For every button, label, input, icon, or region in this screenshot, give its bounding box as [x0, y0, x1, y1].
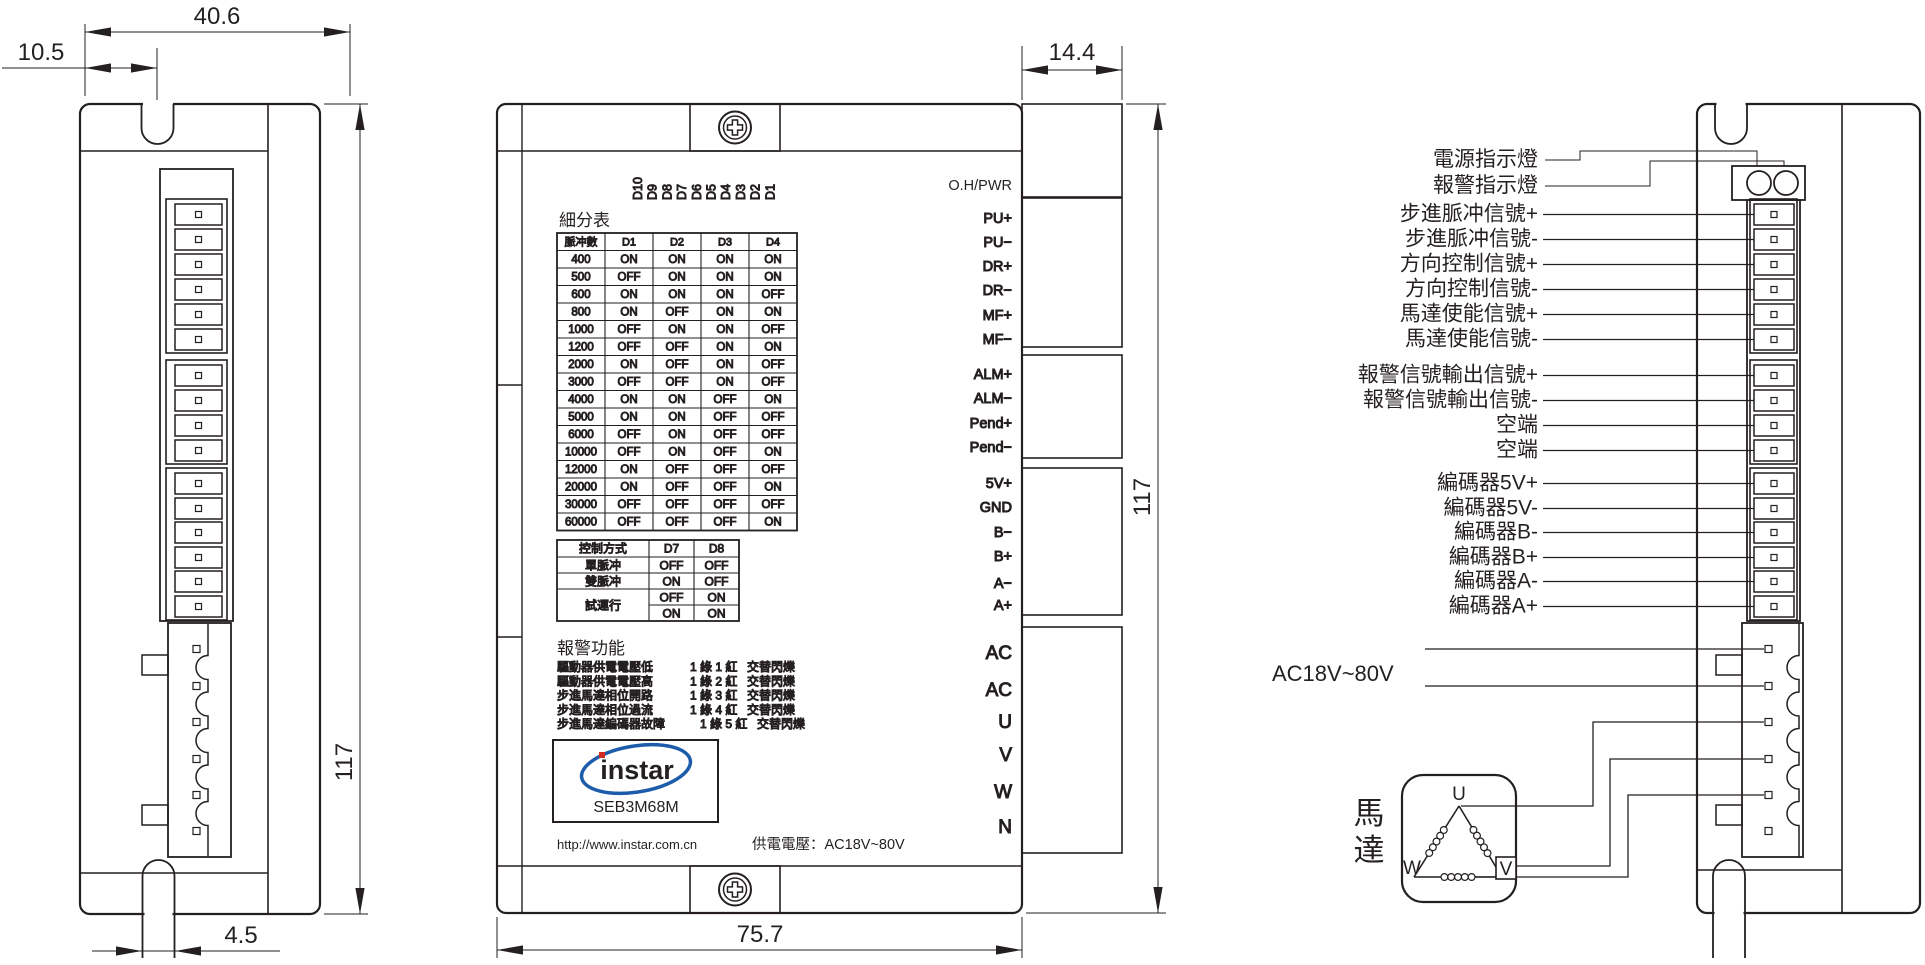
table-cell: ON [620, 306, 637, 318]
power-terminal-label: AC [986, 643, 1012, 664]
terminal-cell [175, 390, 222, 411]
alarm-led-code: 1 綠 4 紅 [690, 703, 737, 717]
dim-front-width: 75.7 [737, 921, 784, 948]
table-cell: OFF [762, 289, 785, 301]
supply-voltage-label: AC18V~80V [1272, 661, 1394, 686]
dim-arrow [355, 104, 364, 130]
terminal-cell [175, 440, 222, 461]
table-cell: OFF [660, 591, 684, 605]
coil-turn [1426, 850, 1433, 857]
terminal-pin [196, 287, 202, 293]
signal-terminal-label: DR− [983, 283, 1012, 299]
terminal-cell [1754, 254, 1794, 275]
table-cell: OFF [714, 446, 737, 458]
terminal-cell [175, 329, 222, 350]
terminal-cell [175, 547, 222, 568]
table-cell: ON [668, 271, 685, 283]
terminal-cell [175, 365, 222, 386]
signal-terminal-label: PU+ [983, 211, 1012, 227]
left-connector-tab [142, 805, 168, 825]
terminal-pin [1771, 262, 1777, 268]
dip-label: D2 [749, 184, 763, 200]
terminal-pin [196, 237, 202, 243]
side-connector-block [1022, 104, 1122, 197]
mask [145, 906, 173, 920]
table-cell: ON [668, 254, 685, 266]
terminal-cell [1754, 279, 1794, 300]
terminal-pin [196, 481, 202, 487]
alarm-mode: 交替閃爍 [747, 702, 795, 717]
wiring-label-column: 電源指示燈報警指示燈步進脈冲信號+步進脈冲信號-方向控制信號+方向控制信號-馬達… [1358, 148, 1538, 618]
terminal-cell [1754, 547, 1794, 568]
terminal-cell [175, 571, 222, 592]
coil-turn [1455, 874, 1462, 881]
terminal-pin [196, 212, 202, 218]
terminal-cell [175, 498, 222, 519]
terminal-pin [1771, 481, 1777, 487]
terminal-pin [1771, 237, 1777, 243]
power-led [1747, 171, 1771, 195]
table-cell: OFF [762, 411, 785, 423]
terminal-pin [1771, 337, 1777, 343]
table-cell: ON [716, 376, 733, 388]
wire [1545, 161, 1784, 186]
wiring-label: 馬達使能信號+ [1400, 303, 1538, 326]
screw-icon [719, 112, 751, 144]
coil-turn [1468, 874, 1475, 881]
indicator-wire-label: 報警指示燈 [1433, 174, 1538, 197]
terminal-pin [196, 337, 202, 343]
table-cell: 60000 [565, 516, 597, 528]
wire [1545, 151, 1757, 166]
encoder-terminal-label: A+ [994, 598, 1012, 614]
terminal-pin [196, 530, 202, 536]
alarm-led-code: 1 綠 2 紅 [690, 674, 737, 688]
alarm-mode: 交替閃爍 [747, 659, 795, 674]
alarm-led-code: 1 綠 3 紅 [690, 689, 737, 703]
terminal-cell [175, 596, 222, 617]
table-cell: OFF [618, 271, 641, 283]
power-connector-body [1742, 623, 1803, 857]
wiring-label: 步進脈冲信號- [1405, 228, 1538, 251]
terminal-cell [175, 304, 222, 325]
connector-pin [1765, 683, 1772, 690]
table-cell: ON [668, 289, 685, 301]
table-header: D1 [622, 236, 636, 248]
terminal-cell [175, 204, 222, 225]
wiring-label: 空端 [1496, 414, 1538, 437]
dim-left-width: 40.6 [194, 3, 241, 30]
motor-wire-u [1461, 722, 1764, 806]
table-cell: OFF [618, 446, 641, 458]
terminal-pin [1771, 312, 1777, 318]
connector-pin [193, 792, 200, 799]
table-cell: OFF [705, 559, 729, 573]
power-terminal-label: AC [986, 680, 1012, 701]
subdivision-table-title: 細分表 [559, 211, 610, 230]
table-cell: ON [620, 464, 637, 476]
alarm-fault: 步進馬達編碼器故障 [557, 716, 665, 731]
dim-left-offset: 10.5 [18, 39, 65, 66]
alarm-mode: 交替閃爍 [747, 673, 795, 688]
table-cell: ON [764, 516, 781, 528]
table-cell: 1200 [568, 341, 594, 353]
terminal-pin [1771, 287, 1777, 293]
connector-pin [1765, 719, 1772, 726]
terminal-labels: PU+PU−DR+DR−MF+MF−ALM+ALM−Pend+Pend−5V+G… [970, 211, 1013, 838]
table-cell: OFF [714, 411, 737, 423]
table-cell: OFF [714, 499, 737, 511]
encoder-terminal-label: B+ [994, 549, 1012, 565]
dip-label: D6 [690, 184, 704, 200]
motor-wire-v [1516, 759, 1764, 866]
front-side-connector-blocks [1022, 104, 1122, 853]
motor-label: 馬達 [1354, 796, 1385, 868]
table-cell: OFF [618, 499, 641, 511]
alarm-terminal-label: Pend+ [970, 416, 1012, 432]
table-cell: 10000 [565, 446, 597, 458]
table-cell: OFF [714, 394, 737, 406]
table-cell: ON [716, 271, 733, 283]
table-cell: OFF [666, 516, 689, 528]
table-cell: ON [663, 575, 681, 589]
table-cell: OFF [705, 575, 729, 589]
right-power-connector [1742, 623, 1803, 857]
motor-winding-coils [1426, 826, 1491, 880]
table-cell: ON [716, 306, 733, 318]
terminal-cell [175, 279, 222, 300]
connector-plug-profile [1787, 623, 1799, 857]
mask [1715, 906, 1744, 920]
motor-wire-w [1475, 795, 1764, 877]
terminal-pin [1771, 530, 1777, 536]
encoder-terminal-label: GND [980, 500, 1012, 516]
connector-pin [193, 756, 200, 763]
table-cell: 30000 [565, 499, 597, 511]
table-cell: 6000 [568, 429, 594, 441]
coil-turn [1448, 874, 1455, 881]
table-cell: ON [668, 324, 685, 336]
table-cell: ON [663, 607, 681, 621]
status-led-label: O.H/PWR [948, 178, 1012, 194]
table-header: D2 [670, 236, 684, 248]
wiring-label: 方向控制信號+ [1400, 253, 1538, 276]
table-cell: ON [716, 341, 733, 353]
screw-icon [719, 874, 751, 906]
connector-pin [1765, 792, 1772, 799]
table-cell: ON [620, 481, 637, 493]
table-cell: OFF [666, 499, 689, 511]
dim-left-height: 117 [331, 743, 358, 781]
table-cell: OFF [762, 499, 785, 511]
table-cell: OFF [666, 376, 689, 388]
table-cell: OFF [618, 516, 641, 528]
table-cell: ON [668, 411, 685, 423]
dip-label: D8 [660, 184, 674, 200]
terminal-cell [1754, 440, 1794, 461]
technical-drawing-page: D10D9D8D7D6D5D4D3D2D1 脈冲數D1D2D3D4400ONON… [0, 0, 1925, 965]
table-cell: 400 [571, 254, 590, 266]
wiring-label: 方向控制信號- [1405, 278, 1538, 301]
table-cell: ON [764, 271, 781, 283]
alarm-terminal-label: ALM− [974, 391, 1012, 407]
coil-turn [1461, 874, 1468, 881]
table-cell: ON [668, 429, 685, 441]
alarm-terminal-label: Pend− [970, 440, 1012, 456]
terminal-pin [196, 373, 202, 379]
side-connector-block [1022, 468, 1122, 615]
power-terminal-label: U [998, 712, 1012, 733]
left-top-notch [142, 104, 174, 144]
coil-turn [1484, 850, 1491, 857]
right-terminal-strip [1750, 199, 1797, 620]
motor-label-char: 馬 [1354, 796, 1385, 831]
wiring-label: 編碼器B- [1454, 521, 1538, 544]
table-cell: ON [620, 411, 637, 423]
table-cell: OFF [660, 559, 684, 573]
encoder-terminal-label: B− [994, 525, 1012, 541]
terminal-pin [1771, 423, 1777, 429]
table-header: D7 [664, 542, 680, 556]
encoder-terminal-label: A− [994, 576, 1012, 592]
terminal-pin [1771, 212, 1777, 218]
connector-plug-profile [196, 623, 208, 857]
dip-label: D4 [719, 184, 733, 200]
wiring-label: 編碼器5V+ [1437, 472, 1538, 495]
motor-terminal-u: U [1452, 784, 1466, 805]
terminal-cell [1754, 571, 1794, 592]
power-terminal-label: N [998, 817, 1012, 838]
wiring-label: 報警信號輸出信號- [1363, 389, 1538, 412]
terminal-pin [196, 398, 202, 404]
terminal-pin [196, 262, 202, 268]
dim-arrow [85, 27, 111, 36]
table-cell: 2000 [568, 359, 594, 371]
terminal-cell [1754, 304, 1794, 325]
wiring-label: 報警信號輸出信號+ [1358, 364, 1538, 387]
dim-arrow [175, 946, 201, 955]
terminal-cell [175, 254, 222, 275]
dip-label: D10 [631, 177, 645, 200]
led-panel [1732, 166, 1805, 200]
terminal-cell [175, 473, 222, 494]
terminal-cell [1754, 498, 1794, 519]
terminal-pin [196, 604, 202, 610]
left-connector-tab [142, 655, 168, 675]
terminal-pin [196, 555, 202, 561]
table-cell: ON [620, 254, 637, 266]
alarm-fault: 步進馬達相位過流 [557, 702, 653, 717]
table-cell: 600 [571, 289, 590, 301]
signal-terminal-label: PU− [983, 235, 1012, 251]
left-terminal-strip [166, 199, 227, 620]
terminal-pin [196, 579, 202, 585]
connector-pin [193, 646, 200, 653]
table-cell: OFF [666, 359, 689, 371]
table-header: 脈冲數 [565, 234, 598, 248]
table-cell: OFF [762, 359, 785, 371]
table-cell: OFF [714, 464, 737, 476]
table-cell: OFF [618, 429, 641, 441]
right-top-notch [1715, 104, 1747, 144]
alarm-led-code: 1 綠 5 紅 [700, 717, 747, 731]
connector-pin [193, 683, 200, 690]
motor-terminal-w: W [1403, 858, 1421, 879]
table-cell: 單脈冲 [585, 558, 621, 573]
table-cell: OFF [666, 341, 689, 353]
table-cell: 4000 [568, 394, 594, 406]
dim-front-connector-depth: 14.4 [1049, 39, 1096, 66]
dim-arrow [116, 946, 142, 955]
side-connector-block [1022, 355, 1122, 458]
table-cell: ON [764, 341, 781, 353]
table-cell: ON [708, 607, 726, 621]
indicator-wire-label: 電源指示燈 [1433, 148, 1538, 171]
terminal-group-box [1750, 199, 1797, 353]
wiring-label: 編碼器B+ [1449, 546, 1538, 569]
terminal-pin [196, 448, 202, 454]
left-side-view [80, 97, 320, 958]
terminal-cell [175, 415, 222, 436]
terminal-cell [1754, 204, 1794, 225]
dip-label: D1 [763, 184, 777, 200]
terminal-cell [1754, 390, 1794, 411]
table-cell: OFF [762, 464, 785, 476]
table-cell: 1000 [568, 324, 594, 336]
table-cell: 3000 [568, 376, 594, 388]
control-mode-table: 控制方式D7D8單脈冲OFFOFF雙脈冲ONOFF試運行OFFONONON [557, 540, 739, 621]
right-connector-tab [1716, 805, 1742, 825]
table-cell: ON [764, 306, 781, 318]
table-cell: 800 [571, 306, 590, 318]
wiring-label: 馬達使能信號- [1405, 328, 1538, 351]
dim-arrow [497, 945, 523, 954]
dim-arrow [1096, 65, 1122, 74]
power-terminal-label: V [999, 745, 1012, 766]
table-cell: ON [716, 254, 733, 266]
table-cell: OFF [762, 429, 785, 441]
stepper-driver-drawing: D10D9D8D7D6D5D4D3D2D1 脈冲數D1D2D3D4400ONON… [0, 0, 1925, 965]
dim-arrow [1022, 65, 1048, 74]
table-cell: OFF [714, 481, 737, 493]
table-cell: OFF [618, 341, 641, 353]
table-header: 控制方式 [579, 541, 627, 556]
dim-front-height: 117 [1129, 478, 1156, 516]
power-voltage-note: 供電電壓：AC18V~80V [752, 836, 905, 853]
terminal-pin [196, 423, 202, 429]
table-cell: OFF [618, 376, 641, 388]
dim-arrow [1153, 887, 1162, 913]
terminal-pin [1771, 448, 1777, 454]
alarm-terminal-label: ALM+ [974, 367, 1012, 383]
table-cell: ON [708, 591, 726, 605]
connector-pin [193, 828, 200, 835]
terminal-cell [1754, 229, 1794, 250]
table-cell: OFF [666, 464, 689, 476]
terminal-pin [1771, 373, 1777, 379]
terminal-cell [175, 522, 222, 543]
table-cell: ON [620, 289, 637, 301]
connector-pin [193, 719, 200, 726]
dip-switch-labels: D10D9D8D7D6D5D4D3D2D1 [631, 177, 777, 200]
wiring-label: 編碼器5V- [1443, 497, 1538, 520]
table-cell: 雙脈冲 [585, 574, 621, 589]
table-cell: ON [716, 289, 733, 301]
table-cell: 500 [571, 271, 590, 283]
terminal-pin [196, 506, 202, 512]
dim-arrow [996, 945, 1022, 954]
signal-terminal-label: MF+ [983, 308, 1012, 324]
terminal-pin [1771, 398, 1777, 404]
dim-left-slot: 4.5 [224, 922, 257, 949]
dip-label: D5 [705, 184, 719, 200]
table-cell: 試運行 [585, 598, 621, 613]
table-cell: 5000 [568, 411, 594, 423]
alarm-title: 報警功能 [557, 639, 625, 658]
connector-pin [1765, 756, 1772, 763]
table-cell: ON [764, 254, 781, 266]
terminal-cell [1754, 329, 1794, 350]
table-cell: OFF [762, 376, 785, 388]
alarm-led [1774, 171, 1798, 195]
table-cell: OFF [618, 324, 641, 336]
table-cell: ON [764, 446, 781, 458]
terminal-cell [1754, 365, 1794, 386]
table-cell: OFF [666, 306, 689, 318]
right-connector-tab [1716, 655, 1742, 675]
table-cell: OFF [762, 324, 785, 336]
dim-arrow [1153, 104, 1162, 130]
wiring-label: 編碼器A+ [1449, 595, 1538, 618]
terminal-pin [1771, 579, 1777, 585]
table-cell: ON [668, 394, 685, 406]
terminal-pin [1771, 604, 1777, 610]
alarm-function-list: 驅動器供電電壓低1 綠 1 紅交替閃爍驅動器供電電壓高1 綠 2 紅交替閃爍步進… [557, 659, 805, 731]
table-cell: ON [716, 359, 733, 371]
terminal-group-box [1750, 468, 1797, 620]
dim-arrow [131, 63, 157, 72]
dim-arrow [85, 63, 111, 72]
dip-label: D7 [675, 184, 689, 200]
wiring-label: 步進脈冲信號+ [1400, 203, 1538, 226]
signal-terminal-label: MF− [983, 332, 1012, 348]
dip-label: D9 [646, 184, 660, 200]
motor-terminal-v: V [1500, 859, 1513, 880]
connector-pin [1765, 646, 1772, 653]
connector-pin [1765, 828, 1772, 835]
dip-label: D3 [734, 184, 748, 200]
table-cell: ON [764, 481, 781, 493]
mask [143, 97, 173, 107]
terminal-pin [1771, 506, 1777, 512]
left-power-connector [168, 623, 231, 857]
side-connector-block [1022, 198, 1122, 347]
table-cell: OFF [714, 516, 737, 528]
wiring-label: 空端 [1496, 439, 1538, 462]
alarm-fault: 驅動器供電電壓低 [557, 660, 653, 674]
encoder-terminal-label: 5V+ [986, 476, 1012, 492]
subdivision-table: 脈冲數D1D2D3D4400ONONONON500OFFONONON600ONO… [557, 233, 797, 531]
power-terminal-label: W [994, 782, 1012, 803]
table-header: D3 [718, 236, 732, 248]
table-cell: 12000 [565, 464, 597, 476]
motor-label-char: 達 [1354, 833, 1385, 868]
brand-logo-text: instar [600, 755, 674, 785]
table-cell: ON [620, 359, 637, 371]
table-cell: ON [668, 446, 685, 458]
table-cell: ON [716, 324, 733, 336]
coil-turn [1441, 874, 1448, 881]
